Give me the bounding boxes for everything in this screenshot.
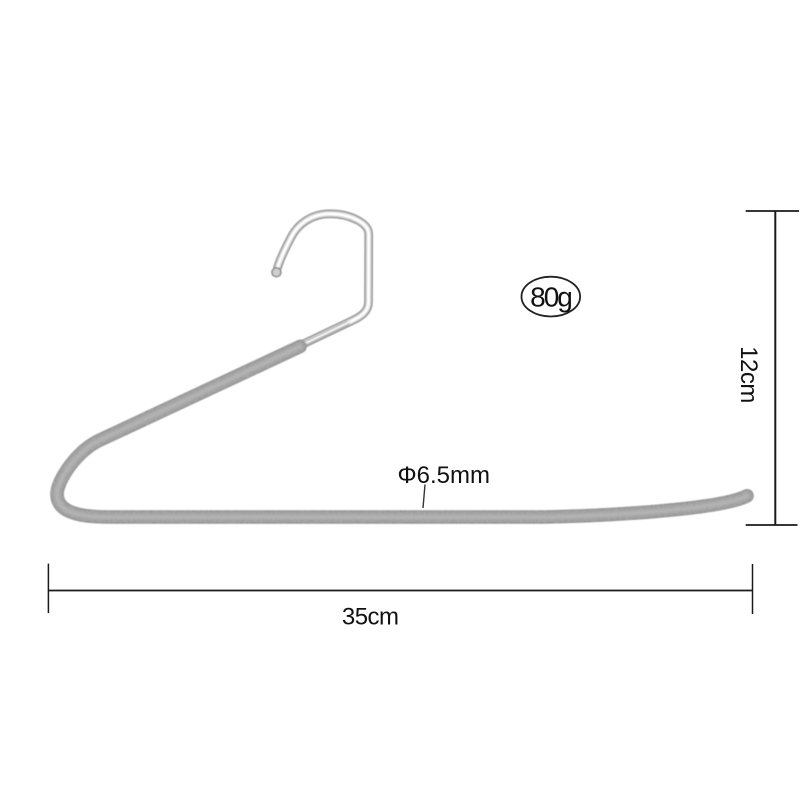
svg-text:80g: 80g	[530, 281, 571, 312]
svg-text:12cm: 12cm	[735, 346, 762, 403]
svg-text:35cm: 35cm	[342, 603, 399, 630]
svg-text:Φ6.5mm: Φ6.5mm	[398, 462, 491, 489]
